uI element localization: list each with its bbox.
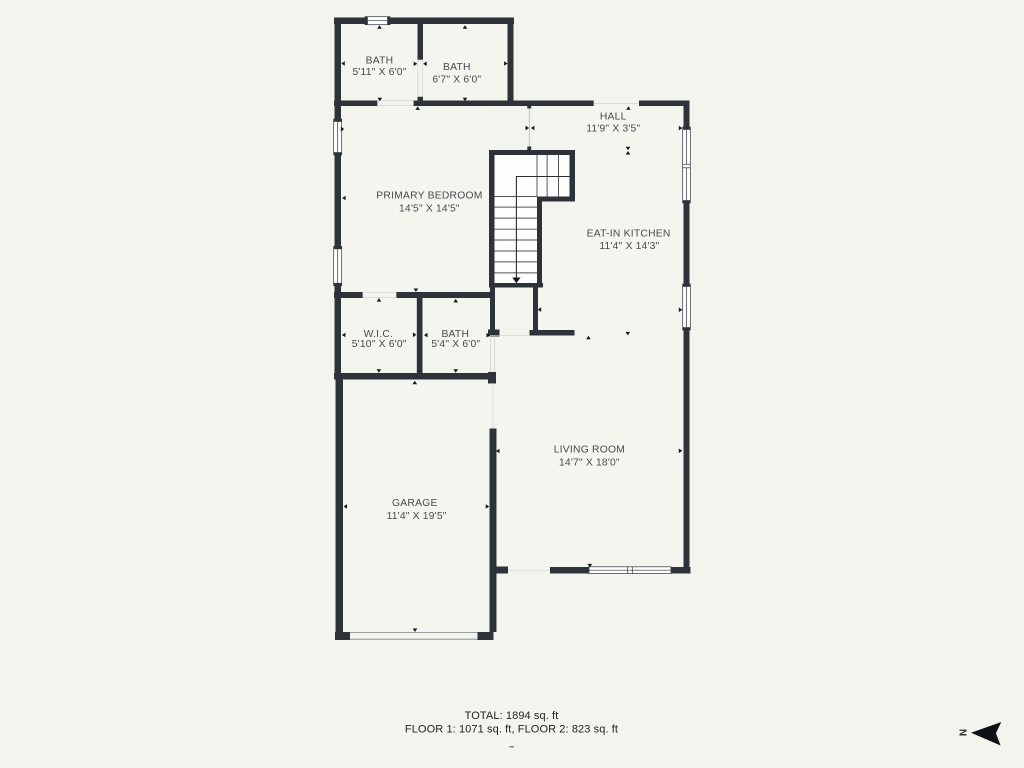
svg-text:GARAGE: GARAGE — [392, 498, 438, 509]
svg-text:PRIMARY BEDROOM: PRIMARY BEDROOM — [376, 190, 482, 201]
svg-text:11'9" X 3'5": 11'9" X 3'5" — [586, 123, 640, 134]
svg-text:LIVING ROOM: LIVING ROOM — [554, 445, 625, 456]
svg-text:6'7" X 6'0": 6'7" X 6'0" — [432, 74, 481, 85]
svg-text:11'4" X 19'5": 11'4" X 19'5" — [387, 511, 447, 522]
svg-text:5'11" X 6'0": 5'11" X 6'0" — [352, 67, 406, 78]
svg-text:N: N — [959, 729, 970, 736]
svg-text:HALL: HALL — [600, 112, 627, 123]
svg-text:14'5" X 14'5": 14'5" X 14'5" — [399, 203, 460, 214]
svg-text:EAT-IN KITCHEN: EAT-IN KITCHEN — [587, 229, 671, 240]
svg-text:14'7" X 18'0": 14'7" X 18'0" — [559, 457, 620, 468]
svg-text:FLOOR 1: 1071 sq. ft, FLOOR 2:: FLOOR 1: 1071 sq. ft, FLOOR 2: 823 sq. f… — [405, 724, 618, 736]
svg-text:TOTAL: 1894 sq. ft: TOTAL: 1894 sq. ft — [465, 710, 559, 722]
svg-text:BATH: BATH — [366, 56, 394, 67]
svg-text:5'4" X 6'0": 5'4" X 6'0" — [431, 339, 480, 350]
svg-text:BATH: BATH — [443, 62, 471, 73]
svg-text:11'4" X 14'3": 11'4" X 14'3" — [599, 241, 659, 252]
svg-text:5'10" X 6'0": 5'10" X 6'0" — [352, 339, 407, 350]
